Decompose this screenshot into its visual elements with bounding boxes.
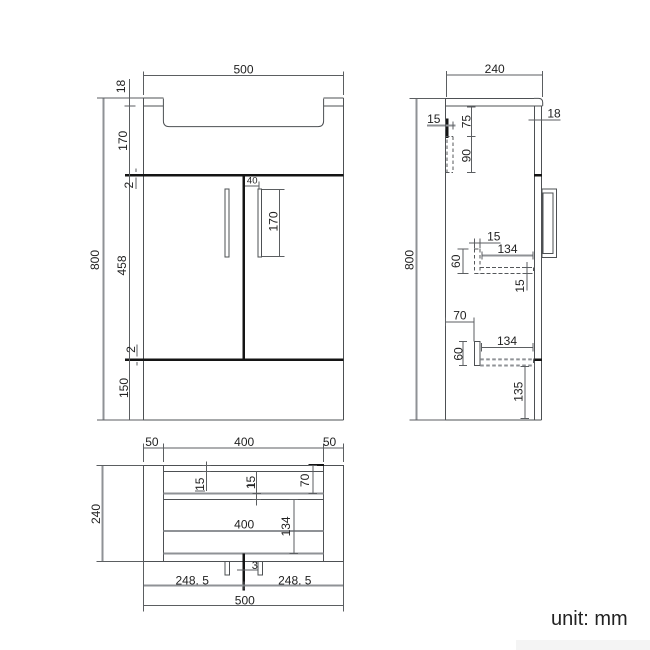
svg-text:unit: mm: unit: mm xyxy=(551,608,628,630)
svg-text:3: 3 xyxy=(252,560,258,572)
svg-text:500: 500 xyxy=(233,62,253,76)
svg-text:15: 15 xyxy=(193,477,207,491)
svg-text:500: 500 xyxy=(235,593,255,607)
svg-text:60: 60 xyxy=(449,254,463,268)
svg-text:15: 15 xyxy=(513,279,527,293)
svg-text:800: 800 xyxy=(88,250,102,270)
svg-text:75: 75 xyxy=(460,115,474,129)
svg-text:240: 240 xyxy=(89,504,103,524)
svg-text:90: 90 xyxy=(460,149,474,163)
svg-text:70: 70 xyxy=(453,308,467,322)
svg-text:15: 15 xyxy=(427,112,441,126)
svg-text:240: 240 xyxy=(485,62,505,76)
svg-text:18: 18 xyxy=(114,80,128,94)
svg-text:248. 5: 248. 5 xyxy=(278,573,312,587)
svg-text:170: 170 xyxy=(267,211,281,231)
svg-text:2: 2 xyxy=(124,346,138,353)
svg-text:400: 400 xyxy=(234,435,254,449)
svg-text:134: 134 xyxy=(279,516,293,536)
svg-text:40: 40 xyxy=(247,176,258,187)
svg-text:2: 2 xyxy=(122,182,136,189)
svg-text:135: 135 xyxy=(512,381,526,401)
svg-text:150: 150 xyxy=(117,378,131,398)
svg-text:400: 400 xyxy=(234,518,254,532)
svg-text:134: 134 xyxy=(497,242,517,256)
svg-text:50: 50 xyxy=(323,435,337,449)
svg-text:248. 5: 248. 5 xyxy=(176,573,210,587)
svg-text:458: 458 xyxy=(115,255,129,275)
svg-text:15: 15 xyxy=(487,229,501,243)
svg-text:18: 18 xyxy=(547,107,561,121)
svg-text:15: 15 xyxy=(244,476,258,490)
svg-text:170: 170 xyxy=(116,130,130,150)
svg-text:70: 70 xyxy=(298,473,312,487)
svg-text:134: 134 xyxy=(497,334,517,348)
svg-text:60: 60 xyxy=(451,347,465,361)
svg-text:50: 50 xyxy=(145,435,159,449)
svg-text:800: 800 xyxy=(403,250,417,270)
